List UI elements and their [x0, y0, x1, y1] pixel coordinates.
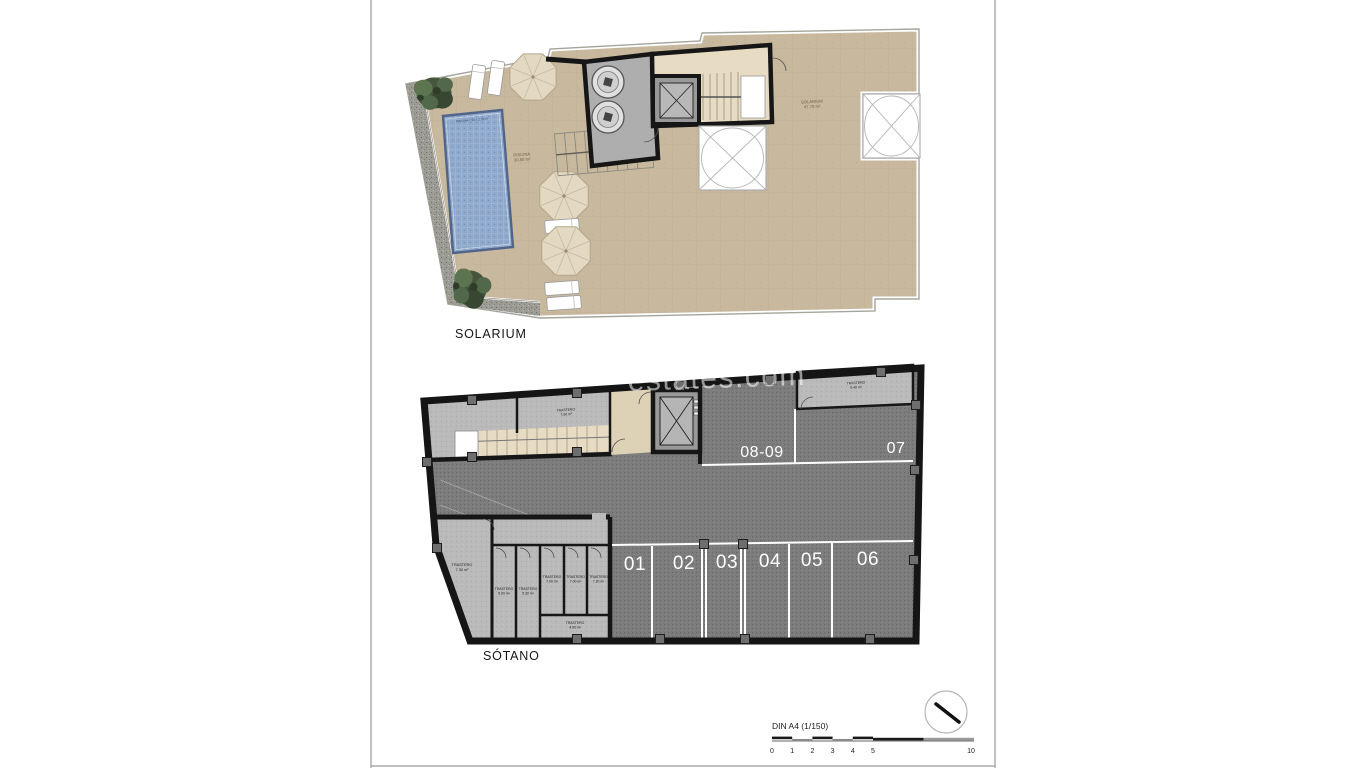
north-arrow-icon — [925, 691, 967, 733]
scale-tick: 4 — [851, 748, 855, 755]
scale-tick: 1 — [790, 748, 794, 755]
storeroom-label: TRASTERO — [543, 575, 562, 579]
pool: PISCINA 7.50 x 2.50 m — [443, 110, 513, 253]
storeroom-area: 7.00 m² — [570, 579, 582, 583]
door-gap — [592, 513, 606, 520]
scale-label: DIN A4 (1/150) — [772, 721, 828, 731]
parking-space-08-09: 08-09 — [740, 444, 783, 461]
elevator-icon — [653, 76, 699, 124]
stair-landing — [741, 76, 765, 118]
storeroom-area: 4.90 m² — [569, 625, 581, 629]
parking-space-03: 03 — [716, 552, 738, 573]
tank-icon — [592, 101, 624, 133]
storeroom-area: 7.00 m² — [560, 412, 573, 417]
storeroom-label: TRASTERO — [452, 563, 473, 567]
storeroom-label: TRASTERO — [589, 575, 608, 579]
lightwell — [863, 94, 920, 158]
storeroom-label: TRASTERO — [519, 587, 538, 591]
tank-icon — [592, 66, 624, 98]
sun-lounger — [545, 280, 580, 295]
storeroom-label: TRASTERO — [566, 575, 585, 579]
elevator-icon — [653, 390, 700, 452]
floorplan-sheet: PISCINA 7.50 x 2.50 m — [0, 0, 1366, 768]
storeroom-label: TRASTERO — [566, 621, 585, 625]
parasol-icon — [540, 172, 589, 221]
scale-tick: 5 — [871, 748, 875, 755]
storeroom-area: 5.00 m² — [498, 591, 510, 595]
scale-tick: 3 — [831, 748, 835, 755]
scale-tick: 10 — [967, 748, 975, 755]
storeroom-area: 5.40 m² — [850, 385, 863, 390]
basement-lobby — [610, 388, 655, 455]
parking-space-07: 07 — [887, 440, 906, 457]
parasol-icon — [542, 227, 591, 276]
page: PISCINA 7.50 x 2.50 m — [0, 0, 1366, 768]
watermark: estates.com — [627, 359, 806, 398]
storeroom-area: 7.30 m² — [456, 568, 470, 572]
sun-lounger — [547, 295, 582, 310]
solarium-plan: PISCINA 7.50 x 2.50 m — [406, 29, 920, 341]
parking-space-06: 06 — [857, 549, 879, 570]
wall — [546, 59, 586, 62]
storeroom-area: 7.00 m² — [546, 579, 558, 583]
parking-space-05: 05 — [801, 550, 823, 571]
sotano-plan: TRASTERO 7.00 m² TRASTERO 5.40 m² — [423, 365, 922, 663]
machine-room — [584, 54, 658, 166]
storeroom-area: 7.20 m² — [593, 579, 605, 583]
parking-space-04: 04 — [759, 551, 781, 572]
parking-space-02: 02 — [673, 553, 695, 574]
storeroom-area: 5.30 m² — [522, 591, 534, 595]
sotano-title: SÓTANO — [483, 648, 540, 663]
scale-tick: 2 — [810, 748, 814, 755]
terrace-area-value: 47.70 m² — [804, 104, 821, 110]
solarium-title: SOLARIUM — [455, 327, 527, 341]
storeroom-label: TRASTERO — [495, 587, 514, 591]
scale-tick: 0 — [770, 748, 774, 755]
lightwell — [699, 126, 766, 190]
parking-space-01: 01 — [624, 554, 646, 575]
